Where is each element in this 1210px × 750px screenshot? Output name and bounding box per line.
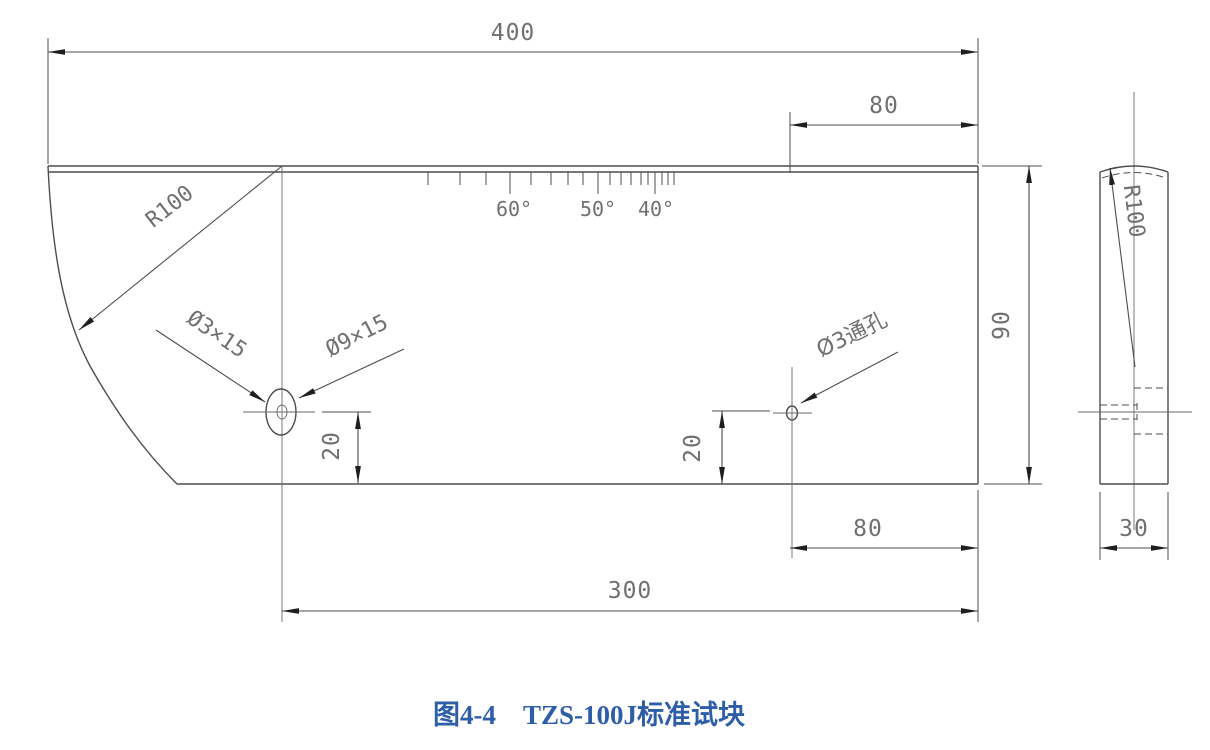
angle-label-60: 60° — [496, 197, 532, 221]
through-hole-label: Ø3通孔 — [813, 307, 892, 362]
side-view: R100 — [1078, 92, 1192, 530]
angle-scale-labels: 60° 50° 40° — [496, 197, 674, 221]
dim-30-value: 30 — [1119, 516, 1149, 542]
dim-span: 300 — [282, 578, 978, 611]
large-hole-leader-line — [299, 349, 404, 398]
technical-drawing: 60° 50° 40° R100 Ø3×15 Ø9×15 20 Ø3通孔 20 — [0, 0, 1210, 750]
dim-80-top-value: 80 — [869, 93, 899, 119]
dim-90-value: 90 — [989, 310, 1015, 340]
front-radius-callout: R100 — [79, 166, 282, 330]
small-hole-label: Ø3×15 — [182, 306, 251, 364]
front-radius-value: R100 — [141, 181, 198, 233]
through-hole-leader-line — [801, 352, 898, 403]
large-hole-label: Ø9×15 — [322, 310, 392, 362]
angle-scale-ticks — [428, 172, 674, 194]
figure-page: 60° 50° 40° R100 Ø3×15 Ø9×15 20 Ø3通孔 20 — [0, 0, 1210, 750]
dim-height: 90 — [982, 166, 1042, 484]
dim-20-left-value: 20 — [319, 431, 345, 461]
angle-label-40: 40° — [638, 197, 674, 221]
left-hole: Ø3×15 Ø9×15 — [156, 306, 404, 435]
dim-20-right-value: 20 — [680, 433, 706, 463]
dim-right-hole-elevation: 20 — [680, 411, 770, 484]
angle-label-50: 50° — [580, 197, 616, 221]
figure-caption: 图4-4 TZS-100J标准试块 — [433, 700, 746, 730]
side-radius-value: R100 — [1118, 183, 1149, 239]
dim-bottom-offset: 80 — [790, 490, 978, 622]
dim-400-value: 400 — [491, 20, 536, 46]
dim-left-hole-elevation: 20 — [319, 412, 371, 483]
dim-length: 400 — [48, 20, 978, 164]
dim-80-bottom-value: 80 — [853, 516, 883, 542]
dim-300-value: 300 — [608, 578, 653, 604]
front-view — [48, 166, 978, 622]
dim-top-offset: 80 — [790, 93, 978, 173]
